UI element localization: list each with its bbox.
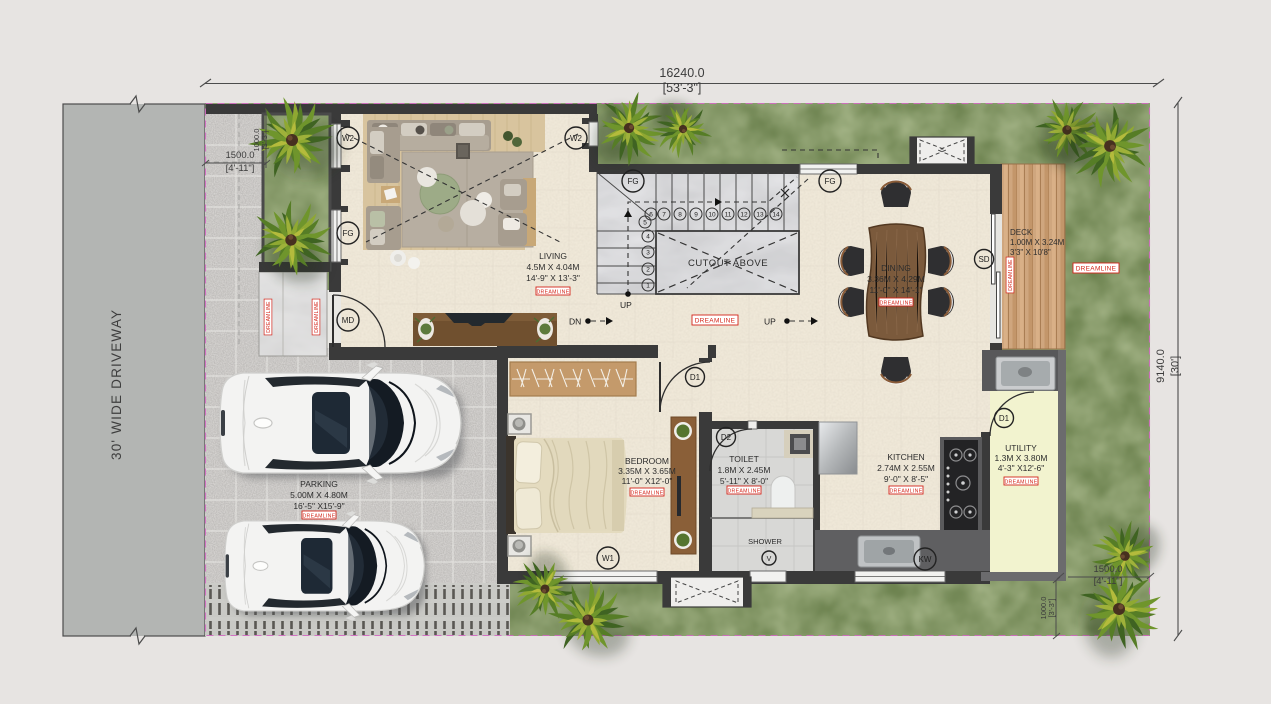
svg-text:[4'-11"]: [4'-11"] [226, 163, 255, 174]
svg-text:9'-0" X 8'-5": 9'-0" X 8'-5" [884, 474, 928, 484]
svg-text:DREAMLINE: DREAMLINE [266, 301, 272, 333]
svg-text:11: 11 [725, 212, 732, 219]
svg-text:1: 1 [646, 283, 650, 290]
svg-text:D2: D2 [721, 433, 732, 442]
svg-text:CUTOUT ABOVE: CUTOUT ABOVE [688, 258, 768, 269]
svg-text:DREAMLINE: DREAMLINE [537, 290, 570, 296]
svg-text:FG: FG [627, 177, 638, 186]
svg-text:5.00M X 4.80M: 5.00M X 4.80M [290, 490, 348, 500]
svg-text:DREAMLINE: DREAMLINE [631, 491, 664, 497]
svg-text:2: 2 [646, 267, 650, 274]
svg-text:30' WIDE DRIVEWAY: 30' WIDE DRIVEWAY [109, 309, 124, 460]
svg-text:4'-3" X12'-6": 4'-3" X12'-6" [998, 463, 1045, 473]
svg-text:13: 13 [756, 212, 764, 219]
svg-text:5: 5 [643, 220, 647, 227]
svg-text:UP: UP [620, 300, 632, 310]
svg-text:DN: DN [569, 317, 581, 327]
svg-text:KW: KW [919, 555, 932, 564]
svg-text:2.74M X 2.55M: 2.74M X 2.55M [877, 463, 935, 473]
svg-text:1500.0: 1500.0 [1093, 564, 1122, 575]
svg-text:D1: D1 [690, 373, 701, 382]
svg-text:SHOWER: SHOWER [748, 537, 782, 546]
svg-text:UP: UP [764, 317, 776, 327]
svg-text:[30']: [30'] [1170, 356, 1182, 376]
svg-text:[3'-3"]: [3'-3"] [260, 130, 269, 149]
svg-text:V: V [767, 556, 772, 563]
svg-text:W2: W2 [570, 134, 583, 143]
svg-text:LIVING: LIVING [539, 251, 567, 261]
svg-text:SD: SD [978, 255, 989, 264]
svg-text:1.00M X 3.24M: 1.00M X 3.24M [1010, 238, 1065, 247]
svg-text:DECK: DECK [1010, 228, 1033, 237]
svg-text:MD: MD [342, 316, 355, 325]
svg-text:4.5M X 4.04M: 4.5M X 4.04M [527, 262, 580, 272]
svg-text:DREAMLINE: DREAMLINE [1005, 480, 1038, 486]
svg-text:4: 4 [646, 234, 650, 241]
svg-text:D1: D1 [999, 414, 1010, 423]
svg-text:DREAMLINE: DREAMLINE [728, 489, 761, 495]
svg-text:3: 3 [646, 250, 650, 257]
svg-text:3'3" X 10'8": 3'3" X 10'8" [1010, 248, 1051, 257]
svg-text:11'-0" X12'-0": 11'-0" X12'-0" [622, 476, 673, 486]
svg-text:DREAMLINE: DREAMLINE [880, 301, 913, 307]
svg-text:1.3M X 3.80M: 1.3M X 3.80M [995, 453, 1048, 463]
svg-text:[53'-3"]: [53'-3"] [663, 81, 702, 95]
svg-text:3.36M X 4.29M: 3.36M X 4.29M [867, 274, 925, 284]
svg-text:DREAMLINE: DREAMLINE [1008, 259, 1014, 291]
svg-text:5'-11" X 8'-0": 5'-11" X 8'-0" [720, 476, 768, 486]
svg-text:9: 9 [694, 212, 698, 219]
svg-text:1500.0: 1500.0 [225, 150, 254, 161]
svg-text:DREAMLINE: DREAMLINE [890, 489, 923, 495]
svg-text:16'-5" X15'-9": 16'-5" X15'-9" [293, 501, 344, 511]
svg-text:9140.0: 9140.0 [1155, 349, 1167, 383]
svg-text:W2: W2 [342, 134, 355, 143]
svg-text:6: 6 [649, 212, 653, 219]
svg-text:DREAMLINE: DREAMLINE [303, 514, 336, 520]
svg-text:3.35M X 3.65M: 3.35M X 3.65M [618, 466, 676, 476]
svg-text:10: 10 [708, 212, 716, 219]
svg-text:7: 7 [662, 212, 666, 219]
svg-text:DINING: DINING [881, 263, 911, 273]
svg-text:11'-0" X 14'-1": 11'-0" X 14'-1" [869, 285, 922, 295]
svg-text:FG: FG [342, 229, 353, 238]
svg-text:14'-9" X 13'-3": 14'-9" X 13'-3" [526, 273, 580, 283]
svg-text:PARKING: PARKING [300, 479, 338, 489]
svg-text:W1: W1 [602, 554, 615, 563]
svg-text:[3'-3"]: [3'-3"] [1047, 598, 1056, 617]
svg-text:14: 14 [772, 212, 780, 219]
svg-text:BEDROOM: BEDROOM [625, 456, 669, 466]
svg-text:DREAMLINE: DREAMLINE [314, 301, 320, 333]
svg-text:TOILET: TOILET [729, 454, 759, 464]
svg-text:UTILITY: UTILITY [1005, 443, 1037, 453]
svg-text:FG: FG [824, 177, 835, 186]
svg-text:KITCHEN: KITCHEN [887, 452, 924, 462]
svg-text:DREAMLINE: DREAMLINE [695, 318, 736, 325]
svg-text:DREAMLINE: DREAMLINE [1076, 266, 1117, 273]
svg-text:[4'-11"]: [4'-11"] [1094, 576, 1123, 587]
svg-text:16240.0: 16240.0 [659, 66, 704, 80]
svg-text:12: 12 [740, 212, 748, 219]
svg-text:8: 8 [678, 212, 682, 219]
svg-text:1.8M X 2.45M: 1.8M X 2.45M [718, 465, 771, 475]
